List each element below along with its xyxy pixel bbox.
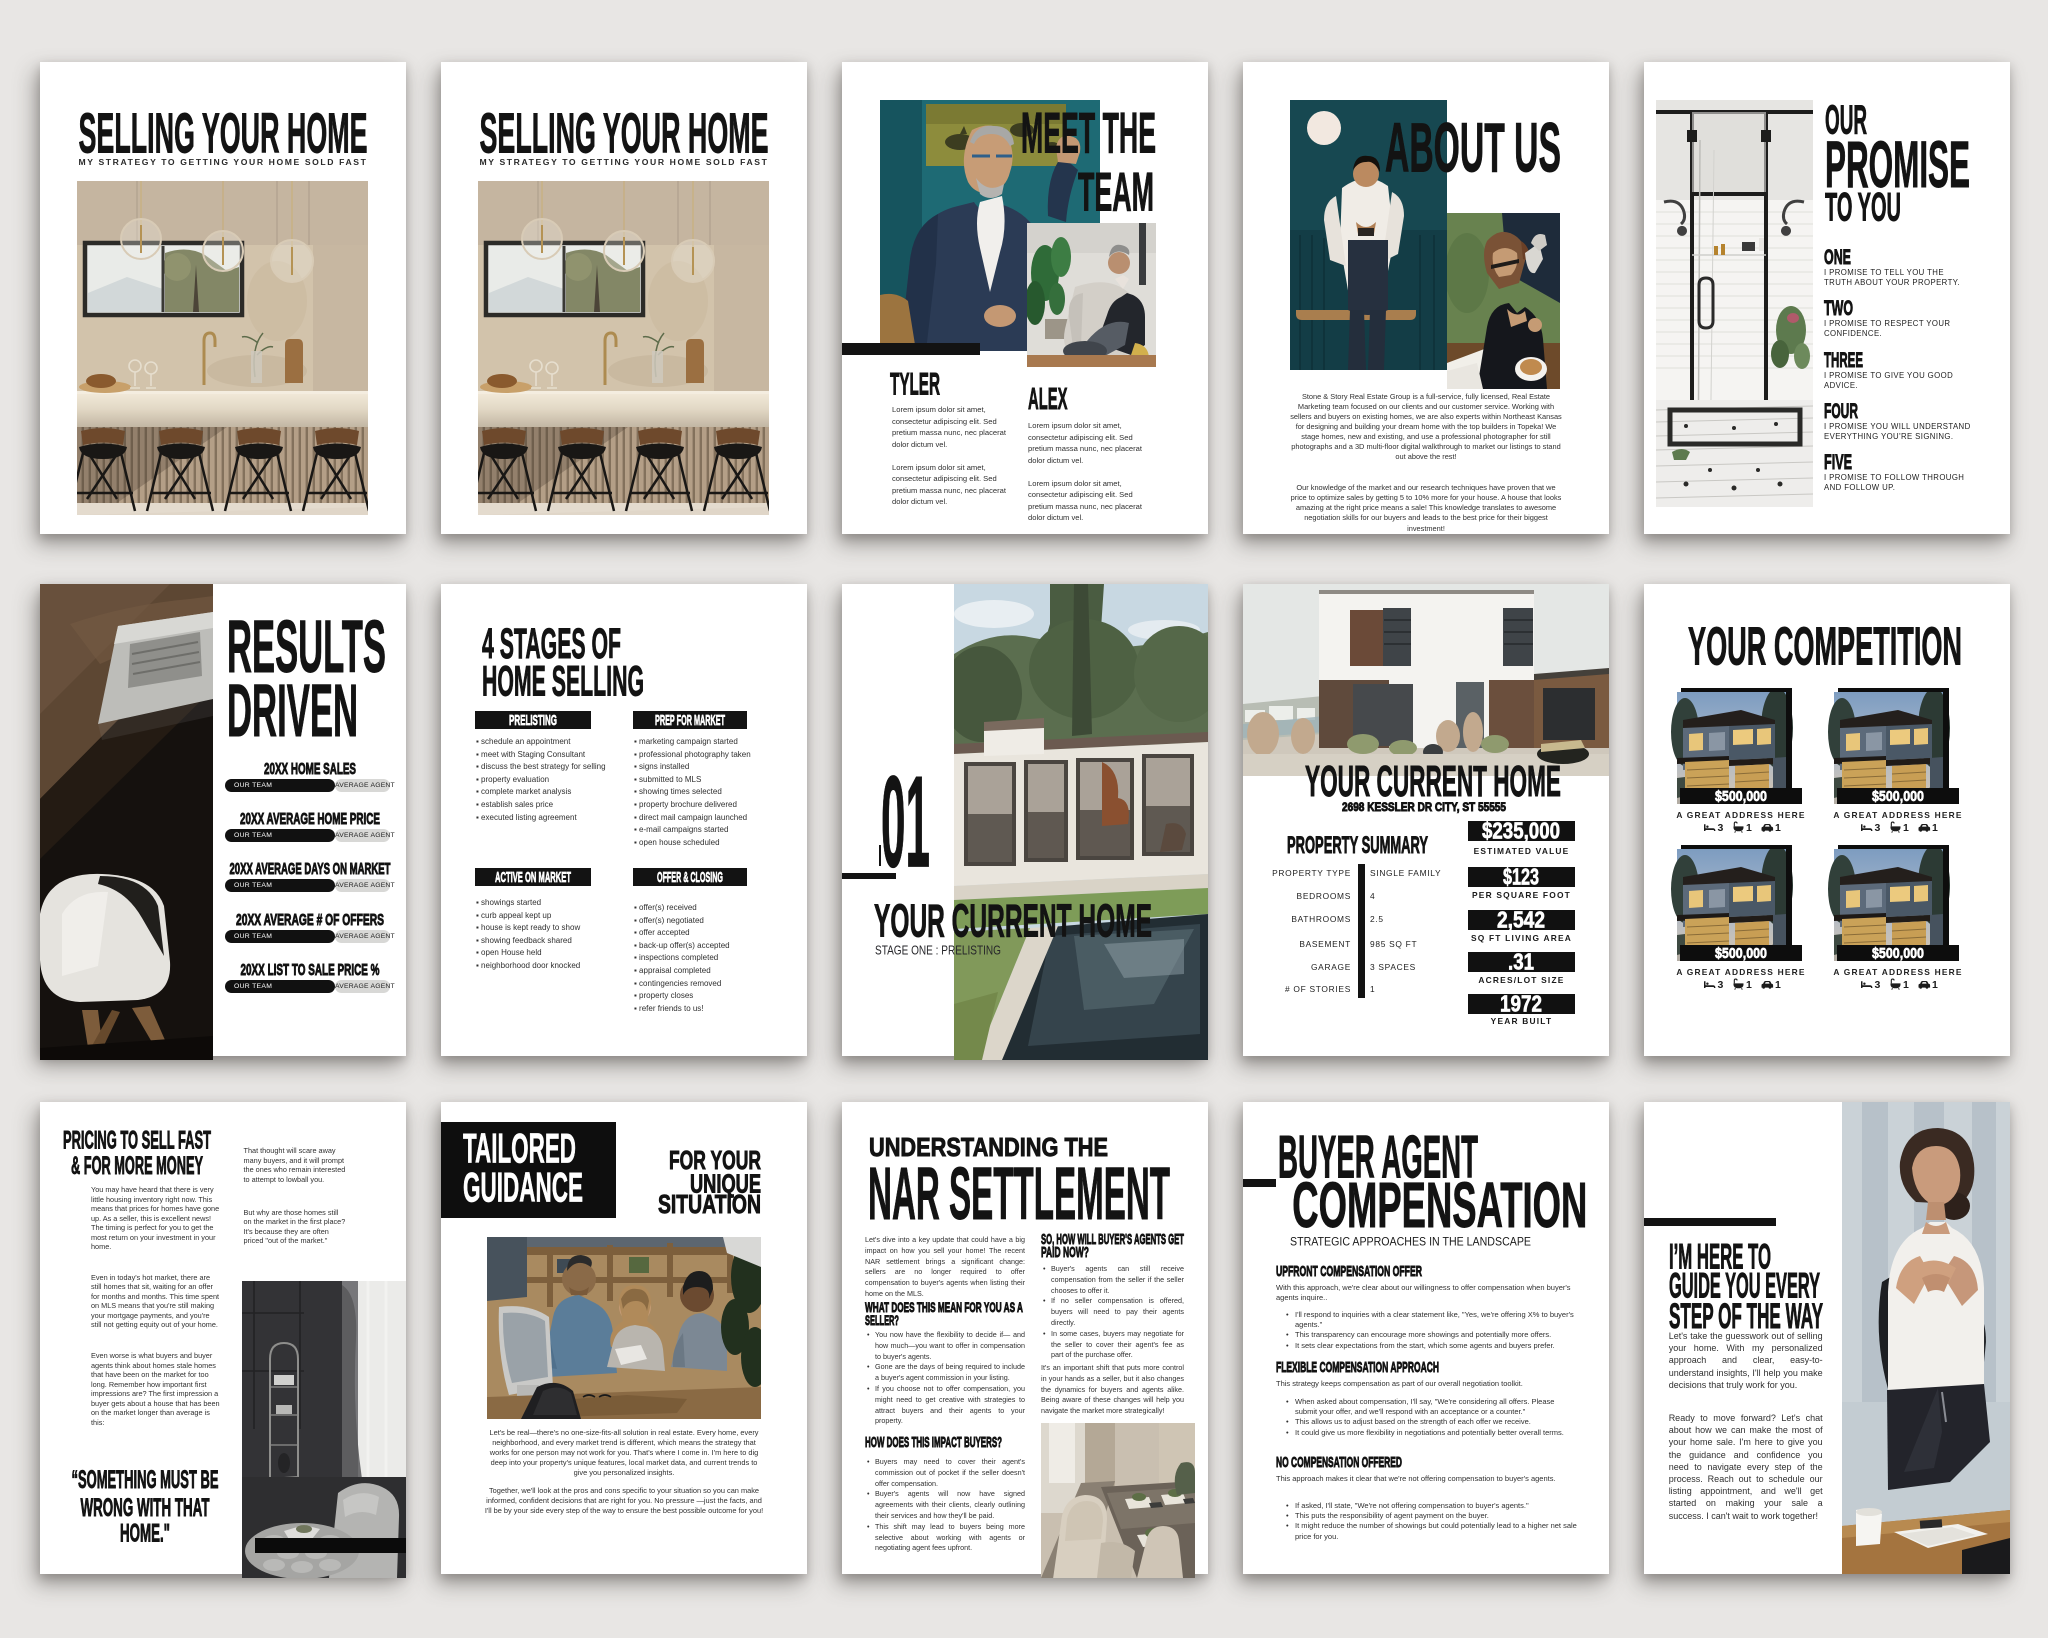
svg-text:WRONG WITH THAT: WRONG WITH THAT: [81, 1494, 210, 1522]
svg-text:GUIDANCE: GUIDANCE: [463, 1164, 583, 1211]
svg-text:PRELISTING: PRELISTING: [509, 712, 557, 729]
svg-text:PROPERTY SUMMARY: PROPERTY SUMMARY: [1287, 832, 1428, 859]
svg-text:UPFRONT COMPENSATION OFFER: UPFRONT COMPENSATION OFFER: [1276, 1263, 1422, 1280]
svg-text:20XX LIST TO SALE PRICE %: 20XX LIST TO SALE PRICE %: [241, 962, 380, 979]
svg-text:HOME SELLING: HOME SELLING: [482, 658, 644, 706]
svg-text:TO YOU: TO YOU: [1825, 186, 1901, 230]
svg-text:YOUR CURRENT HOME: YOUR CURRENT HOME: [874, 894, 1152, 946]
svg-text:STAGE ONE : PRELISTING: STAGE ONE : PRELISTING: [875, 944, 1001, 958]
svg-text:PREP FOR MARKET: PREP FOR MARKET: [655, 712, 725, 729]
svg-text:1972: 1972: [1500, 990, 1542, 1016]
svg-text:& FOR MORE MONEY: & FOR MORE MONEY: [71, 1152, 203, 1180]
svg-text:ABOUT US: ABOUT US: [1385, 109, 1561, 187]
svg-text:NO COMPENSATION OFFERED: NO COMPENSATION OFFERED: [1276, 1454, 1402, 1471]
svg-text:COMPENSATION: COMPENSATION: [1292, 1169, 1587, 1241]
svg-text:$235,000: $235,000: [1482, 817, 1560, 843]
svg-text:FOUR: FOUR: [1824, 400, 1858, 423]
svg-text:20XX AVERAGE # OF OFFERS: 20XX AVERAGE # OF OFFERS: [236, 912, 384, 929]
svg-text:PRICING TO SELL FAST: PRICING TO SELL FAST: [63, 1127, 211, 1155]
svg-text:20XX HOME SALES: 20XX HOME SALES: [264, 761, 356, 778]
svg-text:ALEX: ALEX: [1028, 381, 1068, 416]
svg-text:NAR SETTLEMENT: NAR SETTLEMENT: [868, 1152, 1170, 1235]
svg-text:$123: $123: [1503, 863, 1539, 889]
svg-text:OFFER & CLOSING: OFFER & CLOSING: [657, 869, 723, 886]
svg-text:20XX AVERAGE DAYS ON MARKET: 20XX AVERAGE DAYS ON MARKET: [230, 861, 391, 878]
svg-text:$500,000: $500,000: [1872, 788, 1924, 805]
svg-text:TWO: TWO: [1824, 297, 1853, 320]
svg-text:$500,000: $500,000: [1715, 788, 1767, 805]
svg-text:FLEXIBLE COMPENSATION APPROACH: FLEXIBLE COMPENSATION APPROACH: [1276, 1359, 1439, 1376]
svg-text:TYLER: TYLER: [890, 366, 940, 402]
svg-text:ONE: ONE: [1824, 246, 1851, 269]
svg-text:TEAM: TEAM: [1078, 161, 1154, 223]
svg-text:FIVE: FIVE: [1824, 451, 1852, 474]
svg-text:“SOMETHING MUST BE: “SOMETHING MUST BE: [72, 1466, 219, 1494]
svg-text:DRIVEN: DRIVEN: [227, 669, 358, 752]
svg-text:SELLING YOUR HOME: SELLING YOUR HOME: [79, 102, 368, 165]
svg-text:2698 KESSLER DR CITY, ST 55555: 2698 KESSLER DR CITY, ST 55555: [1342, 800, 1506, 814]
svg-text:MEET THE: MEET THE: [1021, 102, 1156, 166]
svg-text:$500,000: $500,000: [1872, 945, 1924, 962]
svg-text:SELLING YOUR HOME: SELLING YOUR HOME: [480, 102, 769, 165]
svg-text:.31: .31: [1508, 948, 1534, 974]
svg-text:HOW DOES THIS IMPACT BUYERS?: HOW DOES THIS IMPACT BUYERS?: [865, 1435, 1002, 1451]
svg-text:THREE: THREE: [1824, 349, 1863, 372]
svg-text:STRATEGIC APPROACHES IN THE LA: STRATEGIC APPROACHES IN THE LANDSCAPE: [1290, 1237, 1531, 1249]
svg-text:PAID NOW?: PAID NOW?: [1041, 1245, 1089, 1261]
svg-text:SELLER?: SELLER?: [865, 1313, 899, 1328]
svg-text:20XX AVERAGE HOME PRICE: 20XX AVERAGE HOME PRICE: [240, 811, 380, 828]
svg-text:2,542: 2,542: [1497, 906, 1545, 932]
svg-text:SITUATION: SITUATION: [658, 1189, 761, 1219]
svg-text:HOME.": HOME.": [120, 1520, 170, 1548]
svg-text:$500,000: $500,000: [1715, 945, 1767, 962]
svg-text:ACTIVE ON MARKET: ACTIVE ON MARKET: [495, 869, 571, 886]
